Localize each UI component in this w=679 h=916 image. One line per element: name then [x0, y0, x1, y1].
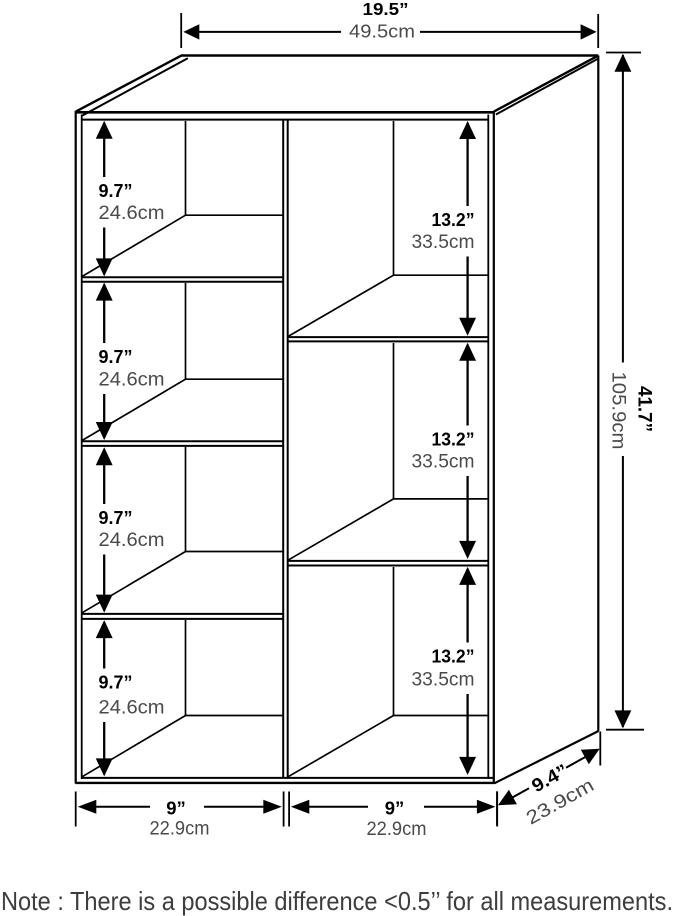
svg-text:105.9cm: 105.9cm: [608, 372, 629, 450]
svg-text:33.5cm: 33.5cm: [412, 232, 475, 253]
svg-text:9”: 9”: [166, 798, 186, 819]
svg-text:49.5cm: 49.5cm: [349, 22, 415, 42]
svg-text:13.2”: 13.2”: [432, 647, 475, 667]
svg-text:41.7”: 41.7”: [634, 386, 655, 432]
svg-text:24.6cm: 24.6cm: [99, 530, 165, 551]
svg-text:24.6cm: 24.6cm: [99, 203, 165, 224]
svg-text:22.9cm: 22.9cm: [367, 819, 427, 840]
svg-text:33.5cm: 33.5cm: [412, 452, 475, 473]
svg-text:9.7”: 9.7”: [99, 673, 133, 693]
svg-text:9”: 9”: [385, 798, 405, 819]
svg-text:13.2”: 13.2”: [432, 210, 475, 230]
svg-text:9.7”: 9.7”: [99, 181, 133, 201]
svg-text:9.7”: 9.7”: [99, 508, 133, 528]
svg-text:22.9cm: 22.9cm: [150, 819, 210, 840]
svg-text:19.5”: 19.5”: [363, 0, 409, 19]
svg-text:33.5cm: 33.5cm: [412, 670, 475, 691]
svg-text:Note : There is a possible dif: Note : There is a possible difference <0…: [1, 886, 673, 916]
svg-text:13.2”: 13.2”: [432, 430, 475, 450]
svg-text:24.6cm: 24.6cm: [99, 370, 165, 391]
svg-text:9.7”: 9.7”: [99, 347, 133, 367]
svg-text:24.6cm: 24.6cm: [99, 698, 165, 719]
